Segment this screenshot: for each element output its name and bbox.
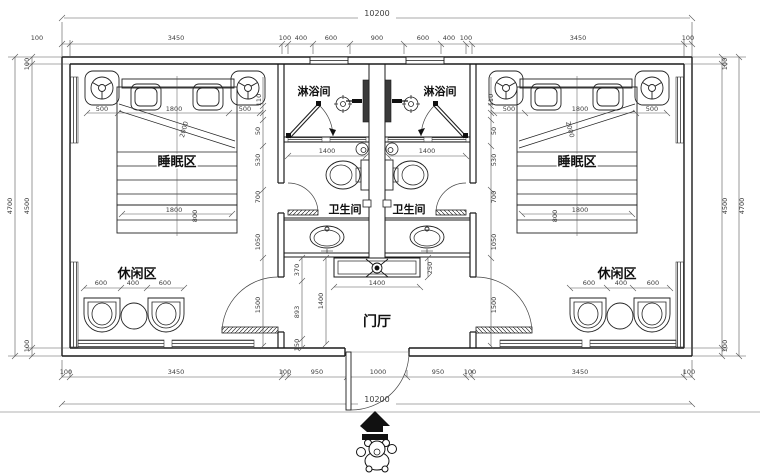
dim-console-depth: 250: [426, 262, 434, 274]
dim-bed-offset: 110: [487, 94, 495, 106]
entrance-figure: [357, 411, 397, 472]
dim-table: 400: [127, 279, 139, 287]
dim-bed-offset: 110: [255, 94, 263, 106]
dim-top-3: 400: [295, 34, 307, 42]
dim-door-height: 1500: [254, 297, 262, 314]
dim-col-1: 530: [254, 154, 262, 166]
dim-col-2: 700: [254, 191, 262, 203]
dim-bottom-1: 3450: [168, 368, 185, 376]
dim-left-inner: 4500: [23, 198, 31, 215]
dim-hall-height: 1400: [317, 293, 325, 310]
dim-right-wall-bottom: 100: [721, 340, 729, 352]
dim-bottom-3: 950: [311, 368, 323, 376]
dim-chair: 600: [95, 279, 107, 287]
dim-table: 400: [615, 279, 627, 287]
dim-top-0: 100: [31, 34, 43, 42]
room-label-toilet-right: 卫生间: [393, 202, 426, 216]
dim-top-total: 10200: [364, 9, 389, 18]
dim-top-2: 100: [279, 34, 291, 42]
dim-col-2: 700: [490, 191, 498, 203]
dim-chair: 600: [159, 279, 171, 287]
dim-right-wall-top: 100: [721, 58, 729, 70]
dim-bottom-4: 1000: [370, 368, 387, 376]
dim-hall-a: 370: [293, 264, 301, 276]
dim-bottom-6: 100: [464, 368, 476, 376]
dim-bed-side: 500: [503, 105, 515, 113]
dim-door-height: 1500: [490, 297, 498, 314]
dim-console-width: 1400: [369, 279, 386, 287]
dim-bottom-2: 100: [279, 368, 291, 376]
dim-hall-b: 893: [293, 306, 301, 318]
room-label-hall: 门厅: [363, 313, 391, 330]
room-label-sleeping-right: 睡眠区: [557, 154, 596, 170]
entrance-arrow-icon: [360, 411, 390, 432]
dim-bed-width: 1800: [166, 105, 183, 113]
room-label-shower-right: 淋浴间: [424, 84, 457, 98]
dim-top-6: 600: [417, 34, 429, 42]
dim-left-wall-bottom: 100: [23, 340, 31, 352]
dim-top-5: 900: [371, 34, 383, 42]
dim-bed-foot: 1800: [572, 206, 589, 214]
dim-chair: 600: [583, 279, 595, 287]
hall-console: [334, 258, 420, 277]
dim-left-wall-top: 100: [23, 58, 31, 70]
dim-bed-side: 500: [96, 105, 108, 113]
dim-chair: 600: [647, 279, 659, 287]
dim-bed-foot-depth: 800: [191, 210, 199, 222]
dim-bottom-0: 100: [60, 368, 72, 376]
dim-bed-side: 500: [646, 105, 658, 113]
dim-col-3: 1050: [490, 234, 498, 251]
room-label-sleeping-left: 睡眠区: [157, 154, 196, 170]
dim-hall-c: 150: [293, 339, 301, 351]
dim-bottom-5: 950: [432, 368, 444, 376]
dim-col-1: 530: [490, 154, 498, 166]
dim-bed-foot: 1800: [166, 206, 183, 214]
dim-bottom-7: 3450: [572, 368, 589, 376]
dim-wc-width: 1400: [319, 147, 336, 155]
dim-top-1: 3450: [168, 34, 185, 42]
dim-wc-width: 1400: [419, 147, 436, 155]
room-label-shower-left: 淋浴间: [298, 84, 331, 98]
dim-bottom-8: 100: [683, 368, 695, 376]
dim-left-outer: 4700: [6, 198, 14, 215]
dim-top-10: 100: [682, 34, 694, 42]
dim-col-0: 50: [254, 127, 262, 135]
dim-bed-foot-depth: 800: [551, 210, 559, 222]
dim-top-4: 600: [325, 34, 337, 42]
floor-plan: 睡眠区 睡眠区 休闲区 休闲区 淋浴间 淋浴间 卫生间 卫生间 门厅 10200…: [0, 0, 760, 473]
dim-top-9: 3450: [570, 34, 587, 42]
dim-top-8: 100: [460, 34, 472, 42]
dim-bed-side: 500: [239, 105, 251, 113]
dim-col-3: 1050: [254, 234, 262, 251]
dim-top-7: 400: [443, 34, 455, 42]
dim-col-0: 50: [490, 127, 498, 135]
dim-right-inner: 4500: [721, 198, 729, 215]
dim-right-outer: 4700: [738, 198, 746, 215]
room-label-toilet-left: 卫生间: [329, 202, 362, 216]
bear-figure: [357, 440, 397, 473]
dim-bed-width: 1800: [572, 105, 589, 113]
dim-bottom-total: 10200: [364, 395, 389, 404]
